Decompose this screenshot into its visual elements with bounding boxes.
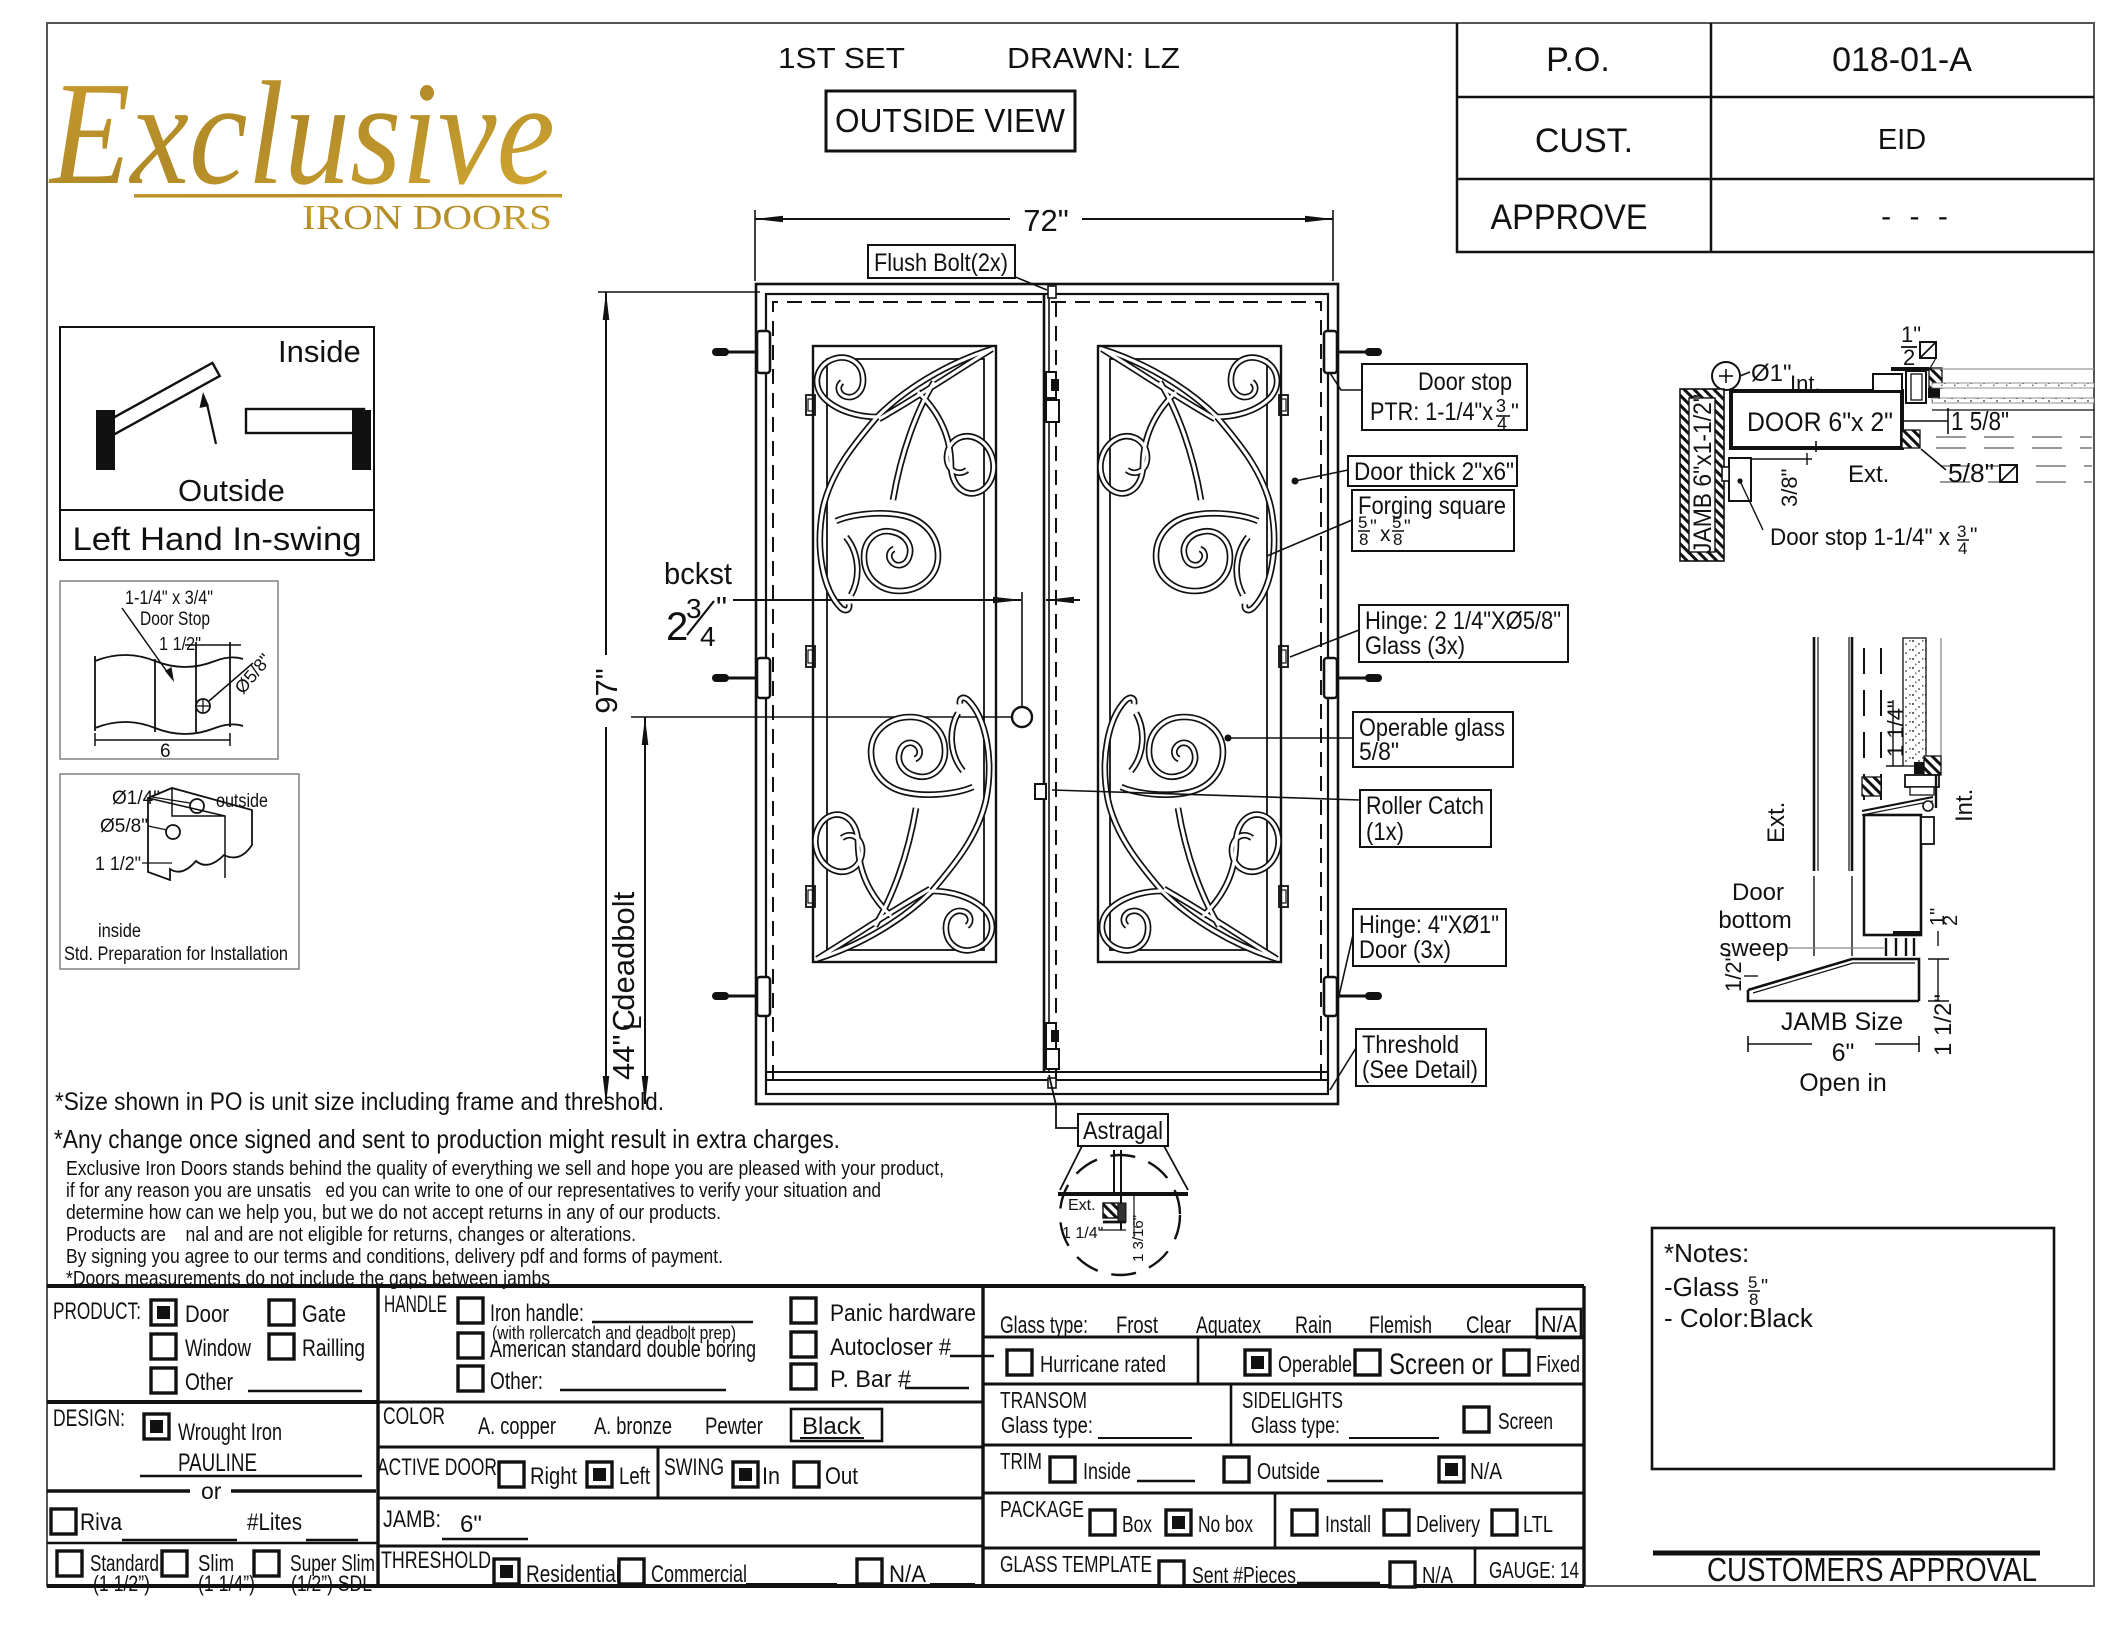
svg-text:Install: Install <box>1325 1511 1371 1537</box>
svg-text:Glass type:: Glass type: <box>1251 1412 1340 1438</box>
svg-text:JAMB:: JAMB: <box>383 1506 441 1533</box>
svg-text:3: 3 <box>1496 396 1506 416</box>
svg-text:PRODUCT:: PRODUCT: <box>53 1298 141 1325</box>
svg-text:Wrought Iron: Wrought Iron <box>178 1419 282 1446</box>
svg-text:Door: Door <box>185 1301 229 1328</box>
svg-text:-Glass: -Glass <box>1664 1272 1739 1302</box>
svg-text:DRAWN: LZ: DRAWN: LZ <box>1007 43 1180 75</box>
svg-text:CUSTOMERS APPROVAL: CUSTOMERS APPROVAL <box>1707 1551 2037 1588</box>
svg-text:Left: Left <box>619 1463 650 1490</box>
svg-text:P.O.: P.O. <box>1546 41 1610 79</box>
svg-text:DESIGN:: DESIGN: <box>53 1405 125 1432</box>
svg-text:or: or <box>201 1478 222 1504</box>
svg-text:Forging square: Forging square <box>1358 492 1506 520</box>
svg-text:1 1/2": 1 1/2" <box>1930 994 1957 1056</box>
svg-text:determine how can we help you,: determine how can we help you, but we do… <box>66 1202 721 1224</box>
svg-text:Hinge: 4"XØ1": Hinge: 4"XØ1" <box>1359 911 1499 939</box>
svg-text:Other: Other <box>185 1369 233 1396</box>
svg-text:JAMB Size: JAMB Size <box>1781 1008 1903 1036</box>
svg-text:Sent #Pieces: Sent #Pieces <box>1192 1562 1296 1588</box>
svg-text:Gate: Gate <box>302 1301 346 1328</box>
svg-text:1ST SET: 1ST SET <box>778 43 905 75</box>
svg-text:Ø1": Ø1" <box>1751 360 1792 387</box>
svg-text:Outside: Outside <box>1257 1458 1320 1484</box>
svg-text:2: 2 <box>1940 915 1962 926</box>
svg-text:APPROVE: APPROVE <box>1491 198 1648 237</box>
svg-text:N/A: N/A <box>1541 1311 1578 1337</box>
svg-text:Flush Bolt(2x): Flush Bolt(2x) <box>874 249 1008 277</box>
svg-text:Black: Black <box>802 1413 862 1440</box>
svg-text:SIDELIGHTS: SIDELIGHTS <box>1242 1387 1343 1413</box>
svg-text:(1 1/4”): (1 1/4”) <box>198 1571 255 1596</box>
svg-text:Rain: Rain <box>1295 1312 1332 1339</box>
svg-text:Int.: Int. <box>1951 789 1978 822</box>
svg-text:Exclusive Iron Doors stands be: Exclusive Iron Doors stands behind the q… <box>66 1158 944 1180</box>
svg-text:5/8": 5/8" <box>1359 738 1399 766</box>
svg-text:Window: Window <box>185 1335 252 1362</box>
svg-text:Outside: Outside <box>178 473 285 508</box>
svg-text:PACKAGE: PACKAGE <box>1000 1496 1084 1522</box>
svg-text:1 5/8": 1 5/8" <box>1951 406 2009 436</box>
svg-text:3/8": 3/8" <box>1777 469 1802 507</box>
svg-text:Right: Right <box>530 1463 577 1490</box>
svg-text:Products are nal and are no: Products are nal and are not eligible fo… <box>66 1224 636 1246</box>
svg-text:Ext.: Ext. <box>1763 802 1790 843</box>
svg-text:Residential: Residential <box>526 1561 620 1588</box>
svg-text:In: In <box>762 1463 780 1490</box>
svg-text:(1x): (1x) <box>1366 818 1404 846</box>
svg-text:- Color:Black: - Color:Black <box>1664 1303 1814 1333</box>
svg-text:4: 4 <box>700 621 716 652</box>
svg-text:EID: EID <box>1878 124 1926 156</box>
svg-text:Door (3x): Door (3x) <box>1359 936 1451 964</box>
svg-text:Inside: Inside <box>1083 1458 1131 1484</box>
svg-text:PTR: 1-1/4"x: PTR: 1-1/4"x <box>1370 398 1493 426</box>
svg-text:Other:: Other: <box>490 1368 543 1395</box>
svg-text:1-1/4" x 3/4": 1-1/4" x 3/4" <box>125 588 213 609</box>
svg-text:HANDLE: HANDLE <box>384 1291 447 1318</box>
svg-text:Box: Box <box>1122 1511 1152 1537</box>
svg-text:6: 6 <box>160 741 171 762</box>
svg-text:Astragal: Astragal <box>1083 1117 1163 1145</box>
svg-text:inside: inside <box>98 921 141 942</box>
svg-text:bckst: bckst <box>664 556 732 591</box>
svg-text:Panic hardware: Panic hardware <box>830 1300 976 1327</box>
svg-text:bottom: bottom <box>1718 907 1791 934</box>
svg-text:Exclusive: Exclusive <box>48 52 555 216</box>
svg-text:Flemish: Flemish <box>1369 1312 1432 1339</box>
svg-text:Door stop: Door stop <box>1418 368 1512 396</box>
svg-text:- - -: - - - <box>1881 200 1953 233</box>
svg-text:018-01-A: 018-01-A <box>1832 41 1972 79</box>
svg-text:Railling: Railling <box>302 1335 365 1362</box>
svg-text:": " <box>1370 517 1377 538</box>
svg-text:Glass (3x): Glass (3x) <box>1365 632 1465 660</box>
svg-text:Door: Door <box>1732 879 1784 906</box>
svg-text:Out: Out <box>825 1463 858 1490</box>
svg-text:6": 6" <box>460 1511 482 1538</box>
svg-text:": " <box>1404 517 1411 538</box>
svg-text:OUTSIDE VIEW: OUTSIDE VIEW <box>835 102 1066 139</box>
svg-text:Clear: Clear <box>1466 1312 1511 1339</box>
svg-text:Operable: Operable <box>1278 1351 1352 1377</box>
svg-text:Inside: Inside <box>278 334 361 369</box>
svg-text:Left Hand In-swing: Left Hand In-swing <box>73 521 362 557</box>
svg-text:No box: No box <box>1198 1511 1253 1537</box>
svg-text:CUST.: CUST. <box>1535 122 1633 160</box>
svg-text:": " <box>716 590 727 625</box>
svg-text:(See Detail): (See Detail) <box>1362 1056 1478 1084</box>
svg-text:Ext.: Ext. <box>1848 461 1889 488</box>
svg-text:1 3/16": 1 3/16" <box>1130 1215 1147 1262</box>
svg-text:x: x <box>1380 523 1391 546</box>
svg-text:Open in: Open in <box>1799 1069 1887 1097</box>
svg-text:Fixed: Fixed <box>1536 1351 1580 1377</box>
svg-text:Glass type:: Glass type: <box>1000 1312 1088 1339</box>
svg-text:Hinge: 2 1/4"XØ5/8": Hinge: 2 1/4"XØ5/8" <box>1365 607 1561 635</box>
svg-text:A. copper: A. copper <box>478 1413 556 1440</box>
svg-text:TRANSOM: TRANSOM <box>1000 1387 1087 1413</box>
svg-text:": " <box>1511 399 1519 424</box>
svg-text:LTL: LTL <box>1523 1511 1553 1537</box>
svg-text:Ø5/8": Ø5/8" <box>100 816 148 837</box>
svg-text:P. Bar #: P. Bar # <box>830 1366 912 1393</box>
svg-text:N/A: N/A <box>1422 1562 1454 1588</box>
svg-text:*Notes:: *Notes: <box>1664 1238 1749 1268</box>
svg-text:2: 2 <box>666 605 688 649</box>
svg-text:8: 8 <box>1393 530 1402 549</box>
svg-text:4: 4 <box>1497 414 1507 434</box>
svg-text:4: 4 <box>1958 539 1967 558</box>
svg-text:Aquatex: Aquatex <box>1196 1312 1261 1339</box>
svg-text:1 1/2": 1 1/2" <box>95 854 141 875</box>
svg-text:Door stop 1-1/4" x: Door stop 1-1/4" x <box>1770 524 1950 551</box>
svg-text:72": 72" <box>1023 203 1069 238</box>
svg-text:Commercial: Commercial <box>651 1561 747 1588</box>
svg-text:Pewter: Pewter <box>705 1413 763 1440</box>
svg-text:if for any reason you are unsa: if for any reason you are unsatis ed you… <box>66 1180 881 1202</box>
svg-text:97": 97" <box>589 668 624 714</box>
svg-text:(1/2”) SDL: (1/2”) SDL <box>291 1571 372 1596</box>
svg-text:Ext.: Ext. <box>1068 1197 1096 1214</box>
svg-text:6": 6" <box>1832 1039 1855 1067</box>
svg-text:TRIM: TRIM <box>1000 1448 1042 1474</box>
svg-text:Screen or: Screen or <box>1389 1348 1493 1381</box>
svg-text:Autocloser #: Autocloser # <box>830 1334 952 1361</box>
svg-text:": " <box>1761 1276 1768 1298</box>
svg-text:8: 8 <box>1359 530 1368 549</box>
svg-text:1 1/4": 1 1/4" <box>1062 1225 1103 1242</box>
svg-text:GLASS TEMPLATE: GLASS TEMPLATE <box>1000 1551 1152 1577</box>
svg-text:N/A: N/A <box>1470 1458 1503 1484</box>
svg-text:1 1/4": 1 1/4" <box>1883 700 1908 757</box>
svg-text:1 1/2": 1 1/2" <box>159 634 201 654</box>
svg-text:Hurricane rated: Hurricane rated <box>1040 1351 1166 1377</box>
svg-text:*Size shown in PO is unit size: *Size shown in PO is unit size including… <box>55 1088 664 1116</box>
svg-text:sweep: sweep <box>1719 935 1788 962</box>
svg-text:Door thick 2"x6": Door thick 2"x6" <box>1354 458 1514 486</box>
svg-text:Door Stop: Door Stop <box>140 609 210 630</box>
svg-text:44"CLdeadbolt: 44"CLdeadbolt <box>606 891 647 1080</box>
svg-text:American standard double borin: American standard double boring <box>490 1336 756 1363</box>
svg-text:PAULINE: PAULINE <box>178 1449 257 1477</box>
svg-text:N/A: N/A <box>889 1561 926 1588</box>
svg-text:*Any change once signed and se: *Any change once signed and sent to prod… <box>54 1124 840 1154</box>
svg-text:IRON DOORS: IRON DOORS <box>302 198 552 237</box>
svg-text:GAUGE: 14: GAUGE: 14 <box>1489 1557 1579 1583</box>
svg-text:Riva: Riva <box>80 1509 123 1536</box>
svg-text:Frost: Frost <box>1116 1312 1158 1339</box>
svg-text:#Lites: #Lites <box>247 1509 302 1536</box>
svg-text:(1 1/2”): (1 1/2”) <box>93 1571 150 1596</box>
svg-text:Roller Catch: Roller Catch <box>1366 792 1484 820</box>
svg-text:A. bronze: A. bronze <box>594 1413 672 1440</box>
svg-text:2: 2 <box>1903 345 1915 370</box>
svg-text:JAMB 6"x1-1/2": JAMB 6"x1-1/2" <box>1689 394 1717 554</box>
svg-text:Screen: Screen <box>1498 1408 1553 1434</box>
svg-text:": " <box>1970 524 1977 547</box>
svg-text:Threshold: Threshold <box>1362 1031 1459 1059</box>
svg-text:DOOR 6"x 2": DOOR 6"x 2" <box>1747 407 1893 437</box>
svg-text:Std. Preparation for Installat: Std. Preparation for Installation <box>64 944 288 965</box>
svg-text:COLOR: COLOR <box>383 1403 445 1430</box>
svg-text:5/8": 5/8" <box>1948 458 1994 488</box>
svg-text:Delivery: Delivery <box>1416 1511 1480 1537</box>
svg-text:Glass type:: Glass type: <box>1001 1412 1093 1438</box>
svg-text:By signing you agree to our te: By signing you agree to our terms and co… <box>66 1246 723 1268</box>
svg-text:THRESHOLD: THRESHOLD <box>381 1547 491 1574</box>
svg-text:1": 1" <box>1901 322 1921 347</box>
svg-text:ACTIVE DOOR: ACTIVE DOOR <box>377 1454 497 1481</box>
svg-text:SWING: SWING <box>664 1454 724 1481</box>
